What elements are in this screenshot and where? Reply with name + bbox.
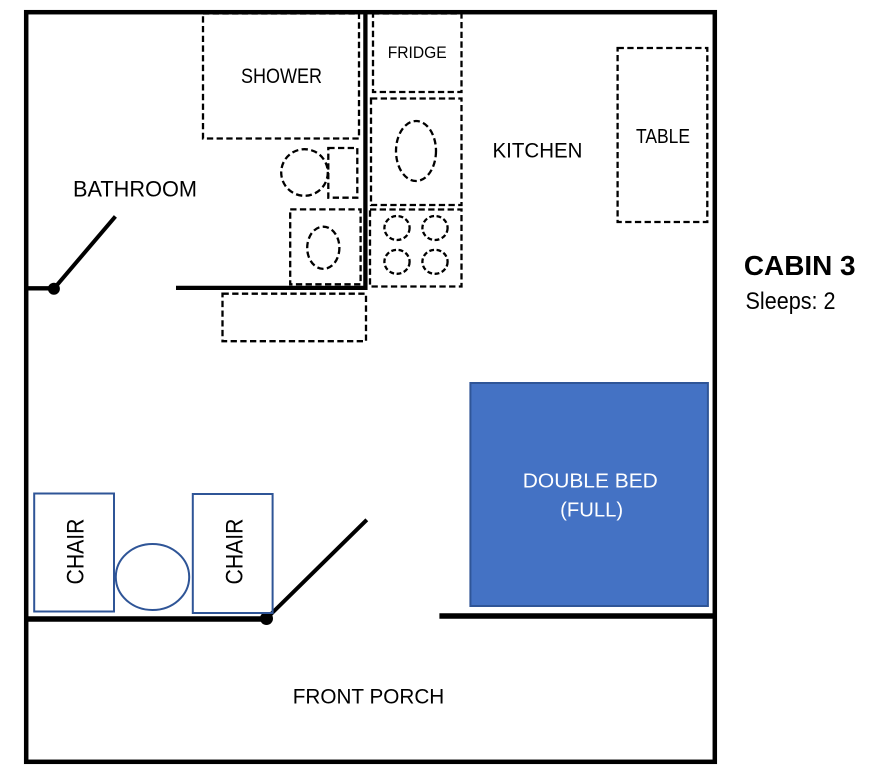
svg-text:KITCHEN: KITCHEN: [493, 139, 583, 162]
svg-text:FRONT PORCH: FRONT PORCH: [293, 686, 445, 709]
svg-text:Sleeps: 2: Sleeps: 2: [746, 288, 836, 315]
svg-text:FRIDGE: FRIDGE: [388, 44, 447, 62]
svg-text:CABIN 3: CABIN 3: [744, 250, 856, 281]
svg-text:BATHROOM: BATHROOM: [73, 176, 197, 201]
svg-text:CHAIR: CHAIR: [62, 519, 89, 585]
svg-text:(FULL): (FULL): [560, 500, 623, 522]
svg-text:TABLE: TABLE: [636, 126, 690, 148]
svg-text:SHOWER: SHOWER: [241, 65, 322, 88]
svg-text:DOUBLE BED: DOUBLE BED: [523, 470, 658, 492]
svg-text:CHAIR: CHAIR: [222, 519, 249, 585]
